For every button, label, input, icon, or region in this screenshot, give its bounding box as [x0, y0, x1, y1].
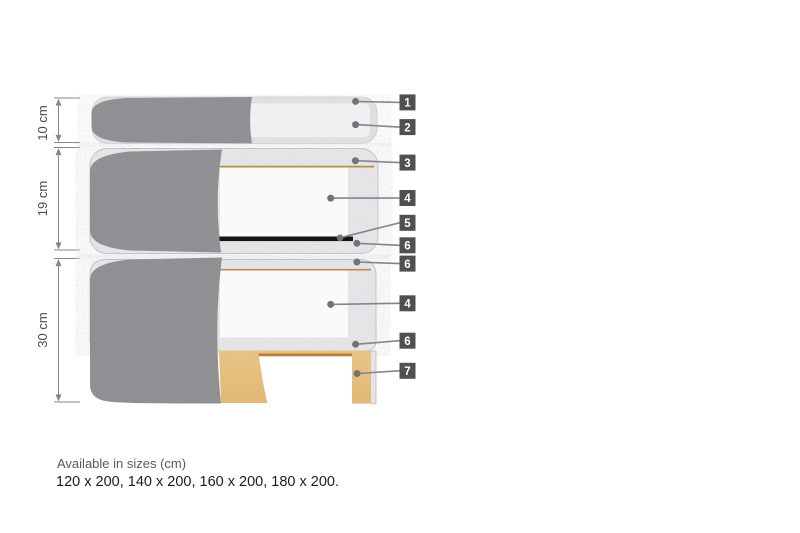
svg-text:Available in sizes (cm): Available in sizes (cm)	[57, 456, 186, 471]
svg-text:120 x 200, 140 x 200, 160 x 20: 120 x 200, 140 x 200, 160 x 200, 180 x 2…	[56, 474, 339, 490]
svg-text:3: 3	[404, 158, 410, 170]
svg-text:6: 6	[404, 241, 410, 253]
svg-text:7: 7	[404, 366, 410, 378]
svg-text:4: 4	[404, 299, 411, 311]
svg-text:30 cm: 30 cm	[35, 312, 50, 347]
svg-text:6: 6	[404, 336, 410, 348]
svg-text:6: 6	[404, 259, 410, 271]
svg-text:1: 1	[404, 98, 411, 110]
svg-text:19 cm: 19 cm	[35, 181, 50, 216]
svg-text:4: 4	[404, 193, 411, 205]
svg-text:5: 5	[404, 218, 411, 230]
svg-text:2: 2	[404, 122, 410, 134]
svg-text:10 cm: 10 cm	[35, 105, 50, 140]
